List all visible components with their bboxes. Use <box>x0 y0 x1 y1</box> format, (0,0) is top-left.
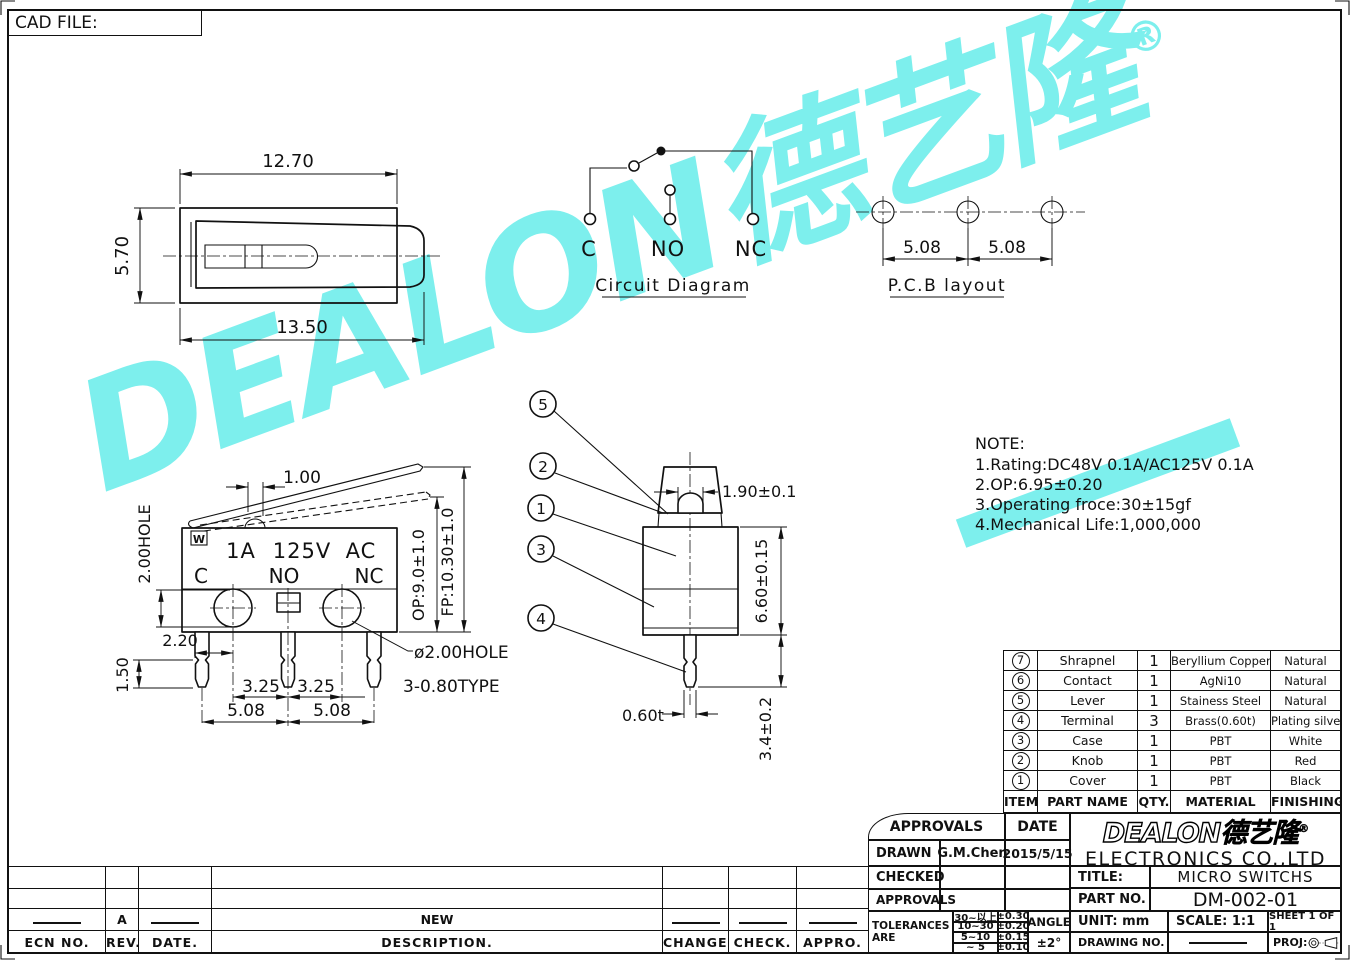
item-balloon: 6 <box>1012 672 1030 690</box>
rating-voltage: 125V <box>273 539 331 563</box>
terminal-no: NO <box>269 564 300 588</box>
circuit-title: Circuit Diagram <box>595 276 751 296</box>
parts-cell: Beryllium Copper <box>1171 651 1271 671</box>
balloon-2: 2 <box>538 458 548 476</box>
pcb-dim-2: 5.08 <box>988 238 1026 258</box>
revision-cell <box>106 889 139 909</box>
revision-cell <box>663 867 729 889</box>
item-balloon: 3 <box>1012 732 1030 750</box>
parts-row: 2Knob1PBTRed <box>1004 751 1341 771</box>
drawn-date-cell: 2015/5/15 <box>1005 840 1070 866</box>
dim-6-60: 6.60±0.15 <box>752 539 771 624</box>
company-logo-cell: DEALON德艺隆® ELECTRONICS CO.,LTD <box>1070 813 1341 866</box>
revision-cell <box>729 909 797 931</box>
checked-by-cell <box>940 866 1005 889</box>
title-label-cell: TITLE: <box>1070 866 1150 888</box>
revision-cell: CHECK. <box>729 931 797 954</box>
parts-table: 7Shrapnel1Beryllium CopperNatural6Contac… <box>1003 650 1341 813</box>
terminal-nc: NC <box>355 564 384 588</box>
dim-0-60t: 0.60t <box>622 706 664 725</box>
dim-fp: FP:10.30±1.0 <box>438 508 457 617</box>
revision-cell <box>729 889 797 909</box>
parts-cell: 1 <box>1138 691 1171 711</box>
registered-mark-icon: ® <box>1298 822 1308 835</box>
tol-range-3: 5~10 <box>953 932 998 943</box>
parts-cell: 1 <box>1138 671 1171 691</box>
parts-header-cell: MATERIAL <box>1171 791 1271 813</box>
parts-cell: 1 <box>1138 751 1171 771</box>
angle-value-cell: ±2° <box>1028 932 1070 953</box>
approvals-date-cell <box>1005 889 1070 911</box>
approvals-by-cell <box>940 889 1005 911</box>
angle-label-cell: ANGLE <box>1028 911 1070 932</box>
balloon-5: 5 <box>538 396 548 414</box>
parts-cell: Lever <box>1038 691 1138 711</box>
revision-cell: REV. <box>106 931 139 954</box>
front-view: W 1A 125V AC C NO NC 1.00 2.00HOLE 2.20 … <box>113 464 509 726</box>
parts-row: 1Cover1PBTBlack <box>1004 771 1341 791</box>
parts-header-cell: ITEM <box>1004 791 1038 813</box>
tol-val-1: ±0.30 <box>998 911 1028 922</box>
drawing-sheet: DEALON德艺隆® .ol{fill:none;stroke:#111;str… <box>0 0 1350 960</box>
scale-cell: SCALE: 1:1 <box>1168 911 1268 932</box>
dim-2-00hole: 2.00HOLE <box>135 504 154 583</box>
title-value-cell: MICRO SWITCHS <box>1150 866 1341 888</box>
note-line-1: 1.Rating:DC48V 0.1A/AC125V 0.1A <box>975 455 1254 474</box>
parts-row: 4Terminal3Brass(0.60t)Plating silver <box>1004 711 1341 731</box>
cad-file-label: CAD FILE: <box>15 13 98 33</box>
parts-cell: PBT <box>1171 771 1271 791</box>
dim-1-90: 1.90±0.1 <box>722 482 796 501</box>
revision-cell: DATE. <box>139 931 212 954</box>
drawn-label-cell: DRAWN <box>868 840 940 866</box>
revision-cell <box>729 867 797 889</box>
revision-cell <box>139 889 212 909</box>
parts-header-row: ITEMPART NAMEQTY.MATERIALFINISHING <box>1004 791 1341 813</box>
tol-range-1: 30~以上 <box>953 911 998 922</box>
revision-cell <box>212 889 663 909</box>
approvals-header-cell: APPROVALS <box>868 813 1005 840</box>
revision-header-row: ECN NO.REV.DATE.DESCRIPTION.CHANGE.CHECK… <box>9 931 869 954</box>
revision-cell <box>139 909 212 931</box>
date-header-cell: DATE <box>1005 813 1070 840</box>
revision-cell: A <box>106 909 139 931</box>
dim-2-20: 2.20 <box>162 631 198 650</box>
rating-current: 1A <box>226 539 256 563</box>
projection-cell: PROJ: <box>1268 932 1341 953</box>
revision-cell: CHANGE. <box>663 931 729 954</box>
parts-row: 5Lever1Stainess SteelNatural <box>1004 691 1341 711</box>
drawing-no-label-cell: DRAWING NO. <box>1070 932 1168 953</box>
dim-3-25-a: 3.25 <box>242 677 280 697</box>
top-view: 12.70 5.70 13.50 <box>112 151 441 345</box>
parts-header-cell: QTY. <box>1138 791 1171 813</box>
item-balloon: 2 <box>1012 752 1030 770</box>
revision-cell <box>9 867 106 889</box>
revision-row <box>9 889 869 909</box>
dealon-logo: DEALON德艺隆® <box>1071 814 1340 849</box>
drawing-no-value-cell <box>1168 932 1268 953</box>
part-no-value-cell: DM-002-01 <box>1150 888 1341 911</box>
parts-row: 6Contact1AgNi10Natural <box>1004 671 1341 691</box>
sheet-cell: SHEET 1 OF 1 <box>1268 911 1341 932</box>
revision-cell: DESCRIPTION. <box>212 931 663 954</box>
note-line-2: 2.OP:6.95±0.20 <box>975 475 1103 494</box>
parts-cell: Knob <box>1038 751 1138 771</box>
third-angle-projection-icon <box>1308 934 1340 952</box>
pcb-dim-1: 5.08 <box>903 238 941 258</box>
item-balloon: 4 <box>1012 712 1030 730</box>
drawing-no-dash <box>1189 942 1247 944</box>
tol-range-2: 10~30 <box>953 922 998 933</box>
cert-mark: W <box>193 533 205 546</box>
balloon-3: 3 <box>536 541 546 559</box>
tol-val-2: ±0.20 <box>998 922 1028 933</box>
dim-5-70: 5.70 <box>112 236 133 276</box>
revision-row: ANEW <box>9 909 869 931</box>
parts-cell: 1 <box>1138 771 1171 791</box>
parts-cell: 1 <box>1138 651 1171 671</box>
parts-cell: Natural <box>1271 671 1341 691</box>
dim-5-08-b: 5.08 <box>313 701 351 721</box>
label-2-00hole: ø2.00HOLE <box>414 643 509 663</box>
revision-cell <box>797 867 869 889</box>
note-title: NOTE: <box>975 434 1025 453</box>
revision-table: ANEWECN NO.REV.DATE.DESCRIPTION.CHANGE.C… <box>8 866 869 954</box>
balloon-1: 1 <box>536 500 546 518</box>
parts-cell: Plating silver <box>1271 711 1341 731</box>
note-line-3: 3.Operating froce:30±15gf <box>975 495 1191 514</box>
dim-3-25-b: 3.25 <box>297 677 335 697</box>
dim-13-50: 13.50 <box>276 317 328 338</box>
tol-val-4: ±0.10 <box>998 943 1028 954</box>
parts-cell: AgNi10 <box>1171 671 1271 691</box>
revision-cell <box>663 909 729 931</box>
revision-cell: ECN NO. <box>9 931 106 954</box>
note-line-4: 4.Mechanical Life:1,000,000 <box>975 515 1201 534</box>
item-balloon: 7 <box>1012 652 1030 670</box>
revision-cell <box>797 889 869 909</box>
revision-cell <box>106 867 139 889</box>
part-no-label-cell: PART NO. <box>1070 888 1150 911</box>
unit-cell: UNIT: mm <box>1070 911 1168 932</box>
parts-cell: PBT <box>1171 751 1271 771</box>
parts-cell: Natural <box>1271 651 1341 671</box>
parts-cell: Black <box>1271 771 1341 791</box>
parts-cell: Terminal <box>1038 711 1138 731</box>
parts-header-cell: PART NAME <box>1038 791 1138 813</box>
tolerances-label-cell: TOLERANCES ARE <box>868 911 953 953</box>
revision-row <box>9 867 869 889</box>
parts-row: 3Case1PBTWhite <box>1004 731 1341 751</box>
pcb-title: P.C.B layout <box>888 276 1006 296</box>
revision-cell <box>9 909 106 931</box>
parts-cell: PBT <box>1171 731 1271 751</box>
approvals-label-cell: APPROVALS <box>868 889 940 911</box>
parts-header-cell: FINISHING <box>1271 791 1341 813</box>
parts-cell: White <box>1271 731 1341 751</box>
dim-1-00: 1.00 <box>283 468 321 488</box>
drawn-by-cell: G.M.Chen <box>940 840 1005 866</box>
parts-cell: Stainess Steel <box>1171 691 1271 711</box>
revision-cell: APPRO. <box>797 931 869 954</box>
circuit-label-c: C <box>581 237 597 261</box>
tol-val-3: ±0.15 <box>998 932 1028 943</box>
revision-cell <box>212 867 663 889</box>
item-balloon: 5 <box>1012 692 1030 710</box>
circuit-diagram: C NO NC Circuit Diagram <box>581 147 767 298</box>
revision-cell <box>9 889 106 909</box>
balloon-4: 4 <box>536 610 546 628</box>
dim-12-70: 12.70 <box>262 151 314 172</box>
pcb-layout: 5.08 5.08 P.C.B layout <box>856 196 1085 297</box>
parts-cell: Natural <box>1271 691 1341 711</box>
circuit-label-no: NO <box>651 237 685 261</box>
label-0-80type: 3-0.80TYPE <box>403 677 500 697</box>
parts-row: 7Shrapnel1Beryllium CopperNatural <box>1004 651 1341 671</box>
circuit-label-nc: NC <box>735 237 767 261</box>
parts-cell: Red <box>1271 751 1341 771</box>
revision-cell <box>139 867 212 889</box>
checked-label-cell: CHECKED <box>868 866 940 889</box>
side-view: 1.90±0.1 6.60±0.15 3.4±0.2 0.60t 5 2 1 <box>528 391 796 761</box>
dim-1-50: 1.50 <box>113 657 132 693</box>
parts-cell: Case <box>1038 731 1138 751</box>
parts-cell: 3 <box>1138 711 1171 731</box>
revision-cell: NEW <box>212 909 663 931</box>
rating-ac: AC <box>346 539 377 563</box>
note-block: NOTE: 1.Rating:DC48V 0.1A/AC125V 0.1A 2.… <box>975 434 1254 534</box>
parts-cell: Cover <box>1038 771 1138 791</box>
parts-cell: Shrapnel <box>1038 651 1138 671</box>
terminal-c: C <box>194 564 208 588</box>
item-balloon: 1 <box>1012 772 1030 790</box>
dim-3-4: 3.4±0.2 <box>756 697 775 761</box>
parts-cell: Brass(0.60t) <box>1171 711 1271 731</box>
parts-cell: 1 <box>1138 731 1171 751</box>
tol-range-4: ~ 5 <box>953 943 998 954</box>
parts-cell: Contact <box>1038 671 1138 691</box>
checked-date-cell <box>1005 866 1070 889</box>
revision-cell <box>797 909 869 931</box>
dim-5-08-a: 5.08 <box>227 701 265 721</box>
revision-cell <box>663 889 729 909</box>
cad-file-box: CAD FILE: <box>8 10 202 36</box>
dim-op: OP:9.0±1.0 <box>409 529 428 621</box>
